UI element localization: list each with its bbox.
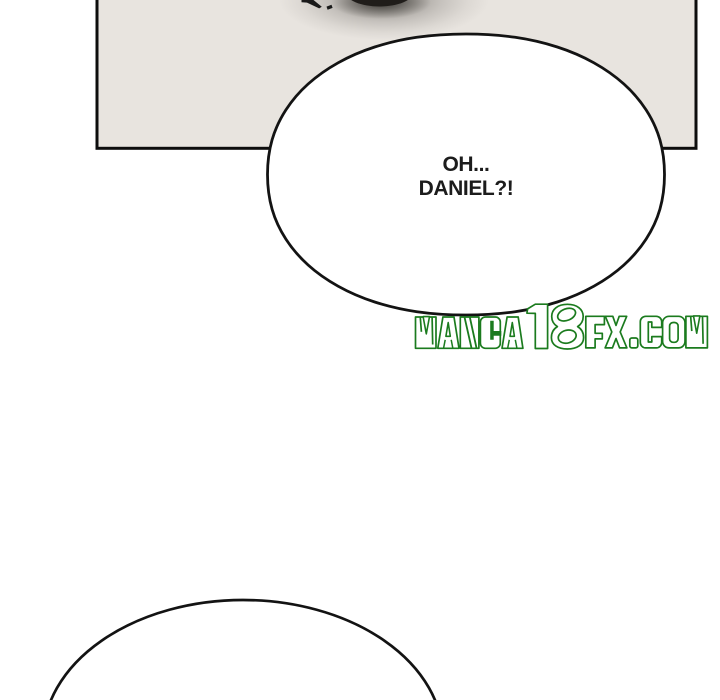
svg-text:OH...: OH... (442, 153, 489, 176)
svg-text:DANIEL?!: DANIEL?! (419, 177, 514, 200)
